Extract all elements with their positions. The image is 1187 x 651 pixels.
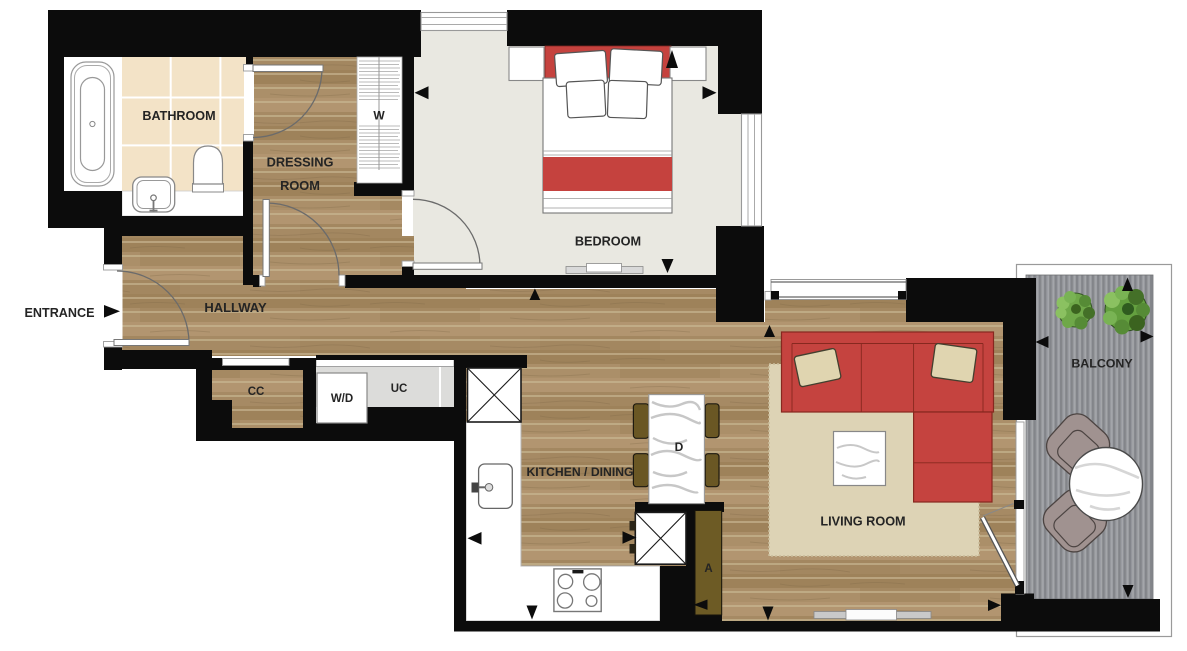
svg-text:BEDROOM: BEDROOM	[575, 235, 641, 249]
svg-text:W/D: W/D	[331, 393, 353, 405]
svg-text:CC: CC	[248, 386, 265, 398]
svg-text:D: D	[675, 440, 684, 454]
svg-text:KITCHEN / DINING: KITCHEN / DINING	[527, 465, 634, 479]
svg-text:W: W	[373, 109, 385, 123]
svg-text:A: A	[704, 563, 712, 575]
svg-text:DRESSING: DRESSING	[267, 155, 334, 170]
svg-text:BALCONY: BALCONY	[1071, 357, 1133, 371]
svg-text:LIVING ROOM: LIVING ROOM	[820, 515, 905, 529]
svg-text:ENTRANCE: ENTRANCE	[25, 306, 95, 320]
svg-text:ROOM: ROOM	[280, 178, 320, 193]
svg-text:HALLWAY: HALLWAY	[204, 300, 267, 315]
svg-text:UC: UC	[391, 383, 408, 395]
svg-text:BATHROOM: BATHROOM	[142, 109, 215, 123]
